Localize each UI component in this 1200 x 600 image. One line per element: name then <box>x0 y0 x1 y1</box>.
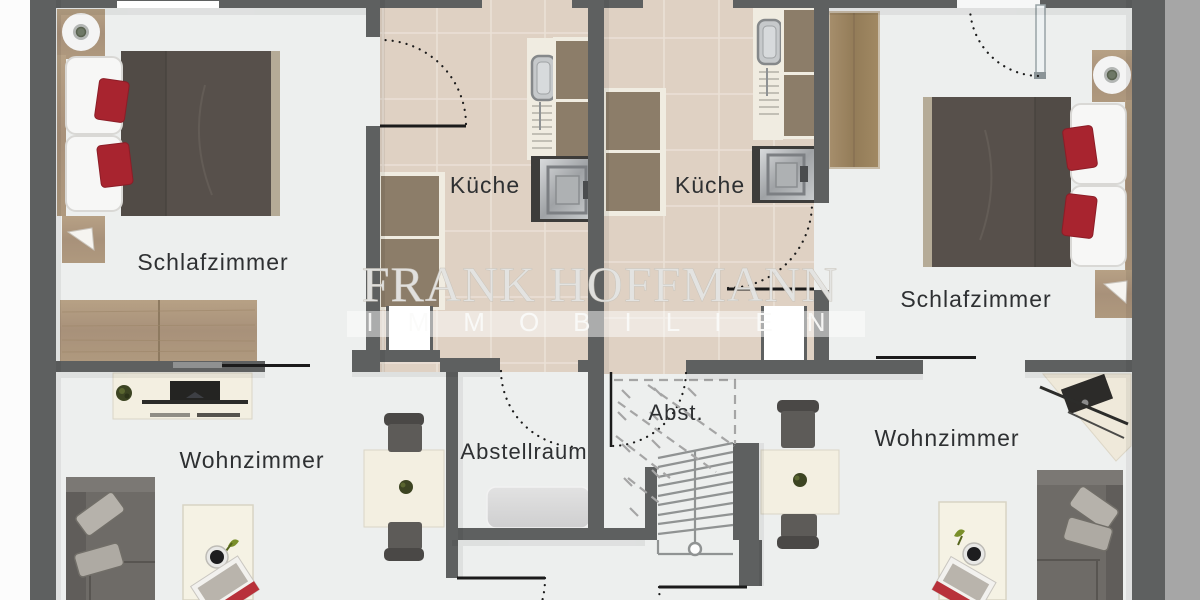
svg-text:Schlafzimmer: Schlafzimmer <box>900 286 1051 312</box>
svg-text:Schlafzimmer: Schlafzimmer <box>137 249 288 275</box>
svg-text:Küche: Küche <box>450 172 520 198</box>
svg-text:IMMOBILIEN: IMMOBILIEN <box>366 307 859 337</box>
svg-text:Wohnzimmer: Wohnzimmer <box>179 447 324 473</box>
svg-text:Küche: Küche <box>675 172 745 198</box>
svg-text:Wohnzimmer: Wohnzimmer <box>874 425 1019 451</box>
svg-text:FRANK HOFFMANN: FRANK HOFFMANN <box>362 256 839 312</box>
svg-text:Abst.: Abst. <box>648 400 703 425</box>
svg-text:Abstellraum: Abstellraum <box>460 439 587 464</box>
